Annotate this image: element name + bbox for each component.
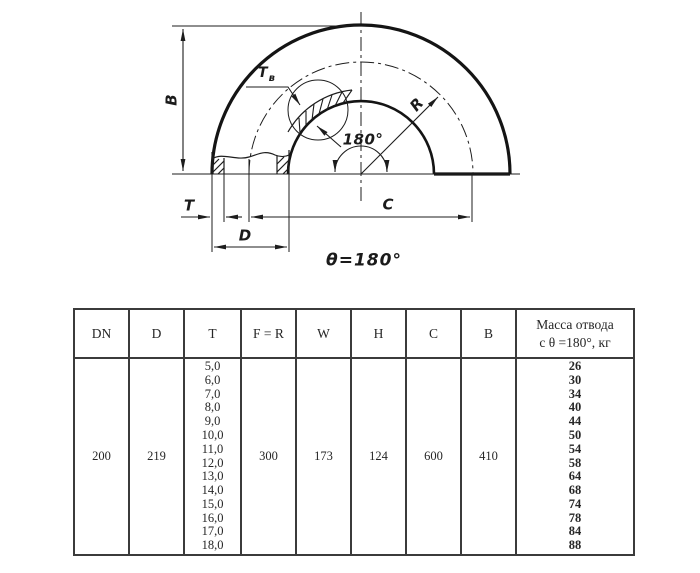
- dim-label-tv: Tв: [258, 66, 274, 80]
- col-header-mass: Масса отвода с θ =180°, кг: [516, 309, 634, 358]
- col-header-w: W: [296, 309, 351, 358]
- cell-dn: 200: [74, 358, 129, 555]
- tv-counter-arrow: [317, 126, 341, 147]
- cell-fr: 300: [241, 358, 296, 555]
- dim-label-c: C: [382, 198, 393, 213]
- table-row: 200 219 5,0 6,0 7,0 8,0 9,0 10,0 11,0 12…: [74, 358, 634, 555]
- dim-label-d: D: [239, 229, 251, 244]
- col-header-b: B: [461, 309, 516, 358]
- cell-t-values: 5,0 6,0 7,0 8,0 9,0 10,0 11,0 12,0 13,0 …: [184, 358, 241, 555]
- dim-label-tv-main: T: [258, 65, 268, 81]
- cell-c: 600: [406, 358, 461, 555]
- page: B T D C R Tв 180° θ=180° DN D T F = R W …: [0, 0, 700, 573]
- col-header-fr: F = R: [241, 309, 296, 358]
- theta-equation-label: θ=180°: [326, 253, 402, 270]
- table-header-row: DN D T F = R W H C B Масса отвода с θ =1…: [74, 309, 634, 358]
- dim-label-t: T: [184, 199, 194, 214]
- angle-value-label: 180°: [343, 133, 384, 148]
- dim-label-b: B: [165, 94, 180, 105]
- col-header-t: T: [184, 309, 241, 358]
- cell-d: 219: [129, 358, 184, 555]
- col-header-dn: DN: [74, 309, 129, 358]
- col-header-h: H: [351, 309, 406, 358]
- cell-mass-values: 26 30 34 40 44 50 54 58 64 68 74 78 84 8…: [516, 358, 634, 555]
- dim-label-tv-sub: в: [269, 73, 275, 84]
- col-header-d: D: [129, 309, 184, 358]
- cell-b: 410: [461, 358, 516, 555]
- dimension-table: DN D T F = R W H C B Масса отвода с θ =1…: [73, 308, 635, 556]
- cell-w: 173: [296, 358, 351, 555]
- elbow-diagram: B T D C R Tв 180° θ=180°: [0, 0, 700, 300]
- cell-h: 124: [351, 358, 406, 555]
- col-header-c: C: [406, 309, 461, 358]
